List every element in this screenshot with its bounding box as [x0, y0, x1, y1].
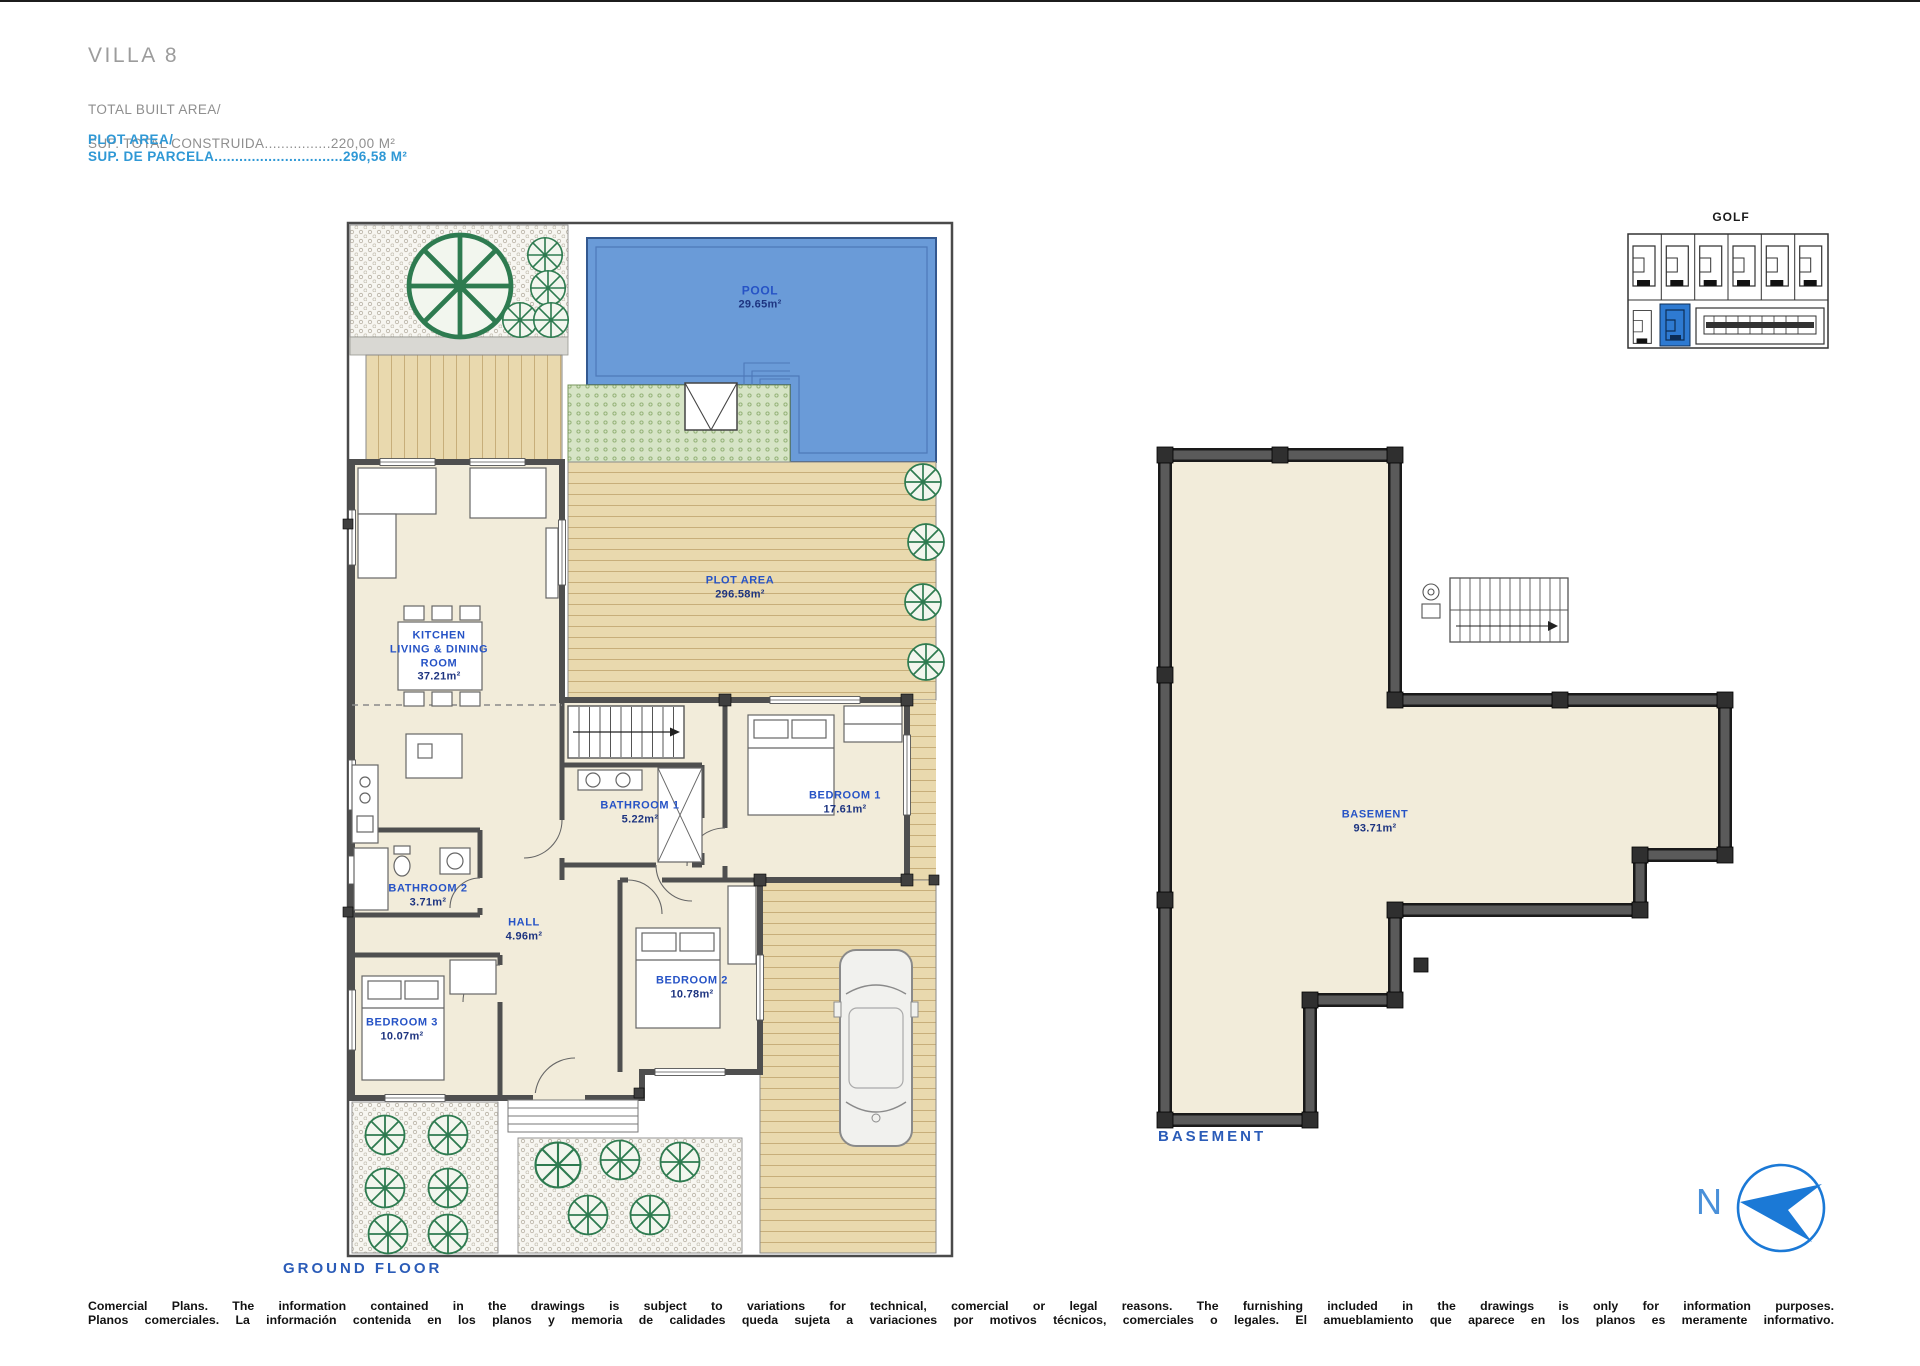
- pergola-icon: [685, 383, 737, 430]
- side-deck-strip: [908, 700, 936, 880]
- site-key-map: GOLF: [1626, 210, 1836, 372]
- grass-patch: [568, 385, 790, 462]
- deck-planks-top: [366, 355, 562, 462]
- walkway-strip: [350, 337, 568, 355]
- plan-sheet: VILLA 8 TOTAL BUILT AREA/ SUP. TOTAL CON…: [0, 0, 1920, 1366]
- basement-utility-icon: [1422, 584, 1440, 618]
- ground-floor-drawing: [340, 220, 960, 1265]
- site-key-unit-bottom-left: [1633, 311, 1651, 344]
- entry-steps: [508, 1100, 638, 1132]
- basement-caption: BASEMENT: [1158, 1128, 1266, 1145]
- tree-icons-top: [409, 235, 568, 337]
- north-compass: N: [1690, 1155, 1840, 1267]
- plot-area-label: PLOT AREA/: [88, 131, 407, 148]
- staircase: [568, 706, 684, 758]
- car-icon: [834, 950, 918, 1146]
- built-area-label: TOTAL BUILT AREA/: [88, 101, 395, 118]
- ground-floor-plan: POOL 29.65m² PLOT AREA 296.58m² KITCHEN …: [340, 220, 960, 1265]
- plot-area-block: PLOT AREA/ SUP. DE PARCELA..............…: [88, 131, 407, 165]
- north-arrow-icon: [1690, 1155, 1840, 1267]
- basement-outline-outer: [1165, 455, 1725, 1120]
- golf-label: GOLF: [1626, 210, 1836, 224]
- site-key-building-block: [1696, 308, 1824, 344]
- disclaimer-line-en: Comercial Plans. The information contain…: [88, 1300, 1834, 1314]
- basement-plan: BASEMENT 93.71m²: [1150, 440, 1750, 1140]
- basement-drawing: [1150, 440, 1750, 1140]
- sheet-top-rule: [0, 0, 1920, 2]
- site-key-drawing: [1626, 230, 1830, 352]
- terrace-deck: [568, 462, 936, 700]
- villa-title: VILLA 8: [88, 44, 179, 68]
- disclaimer-line-es: Planos comerciales. La información conte…: [88, 1314, 1834, 1328]
- site-key-unit-highlight: [1660, 304, 1690, 346]
- plot-area-value: SUP. DE PARCELA.........................…: [88, 148, 407, 165]
- ground-floor-caption: GROUND FLOOR: [283, 1260, 442, 1277]
- disclaimer: Comercial Plans. The information contain…: [88, 1300, 1834, 1327]
- basement-stairs: [1450, 578, 1568, 642]
